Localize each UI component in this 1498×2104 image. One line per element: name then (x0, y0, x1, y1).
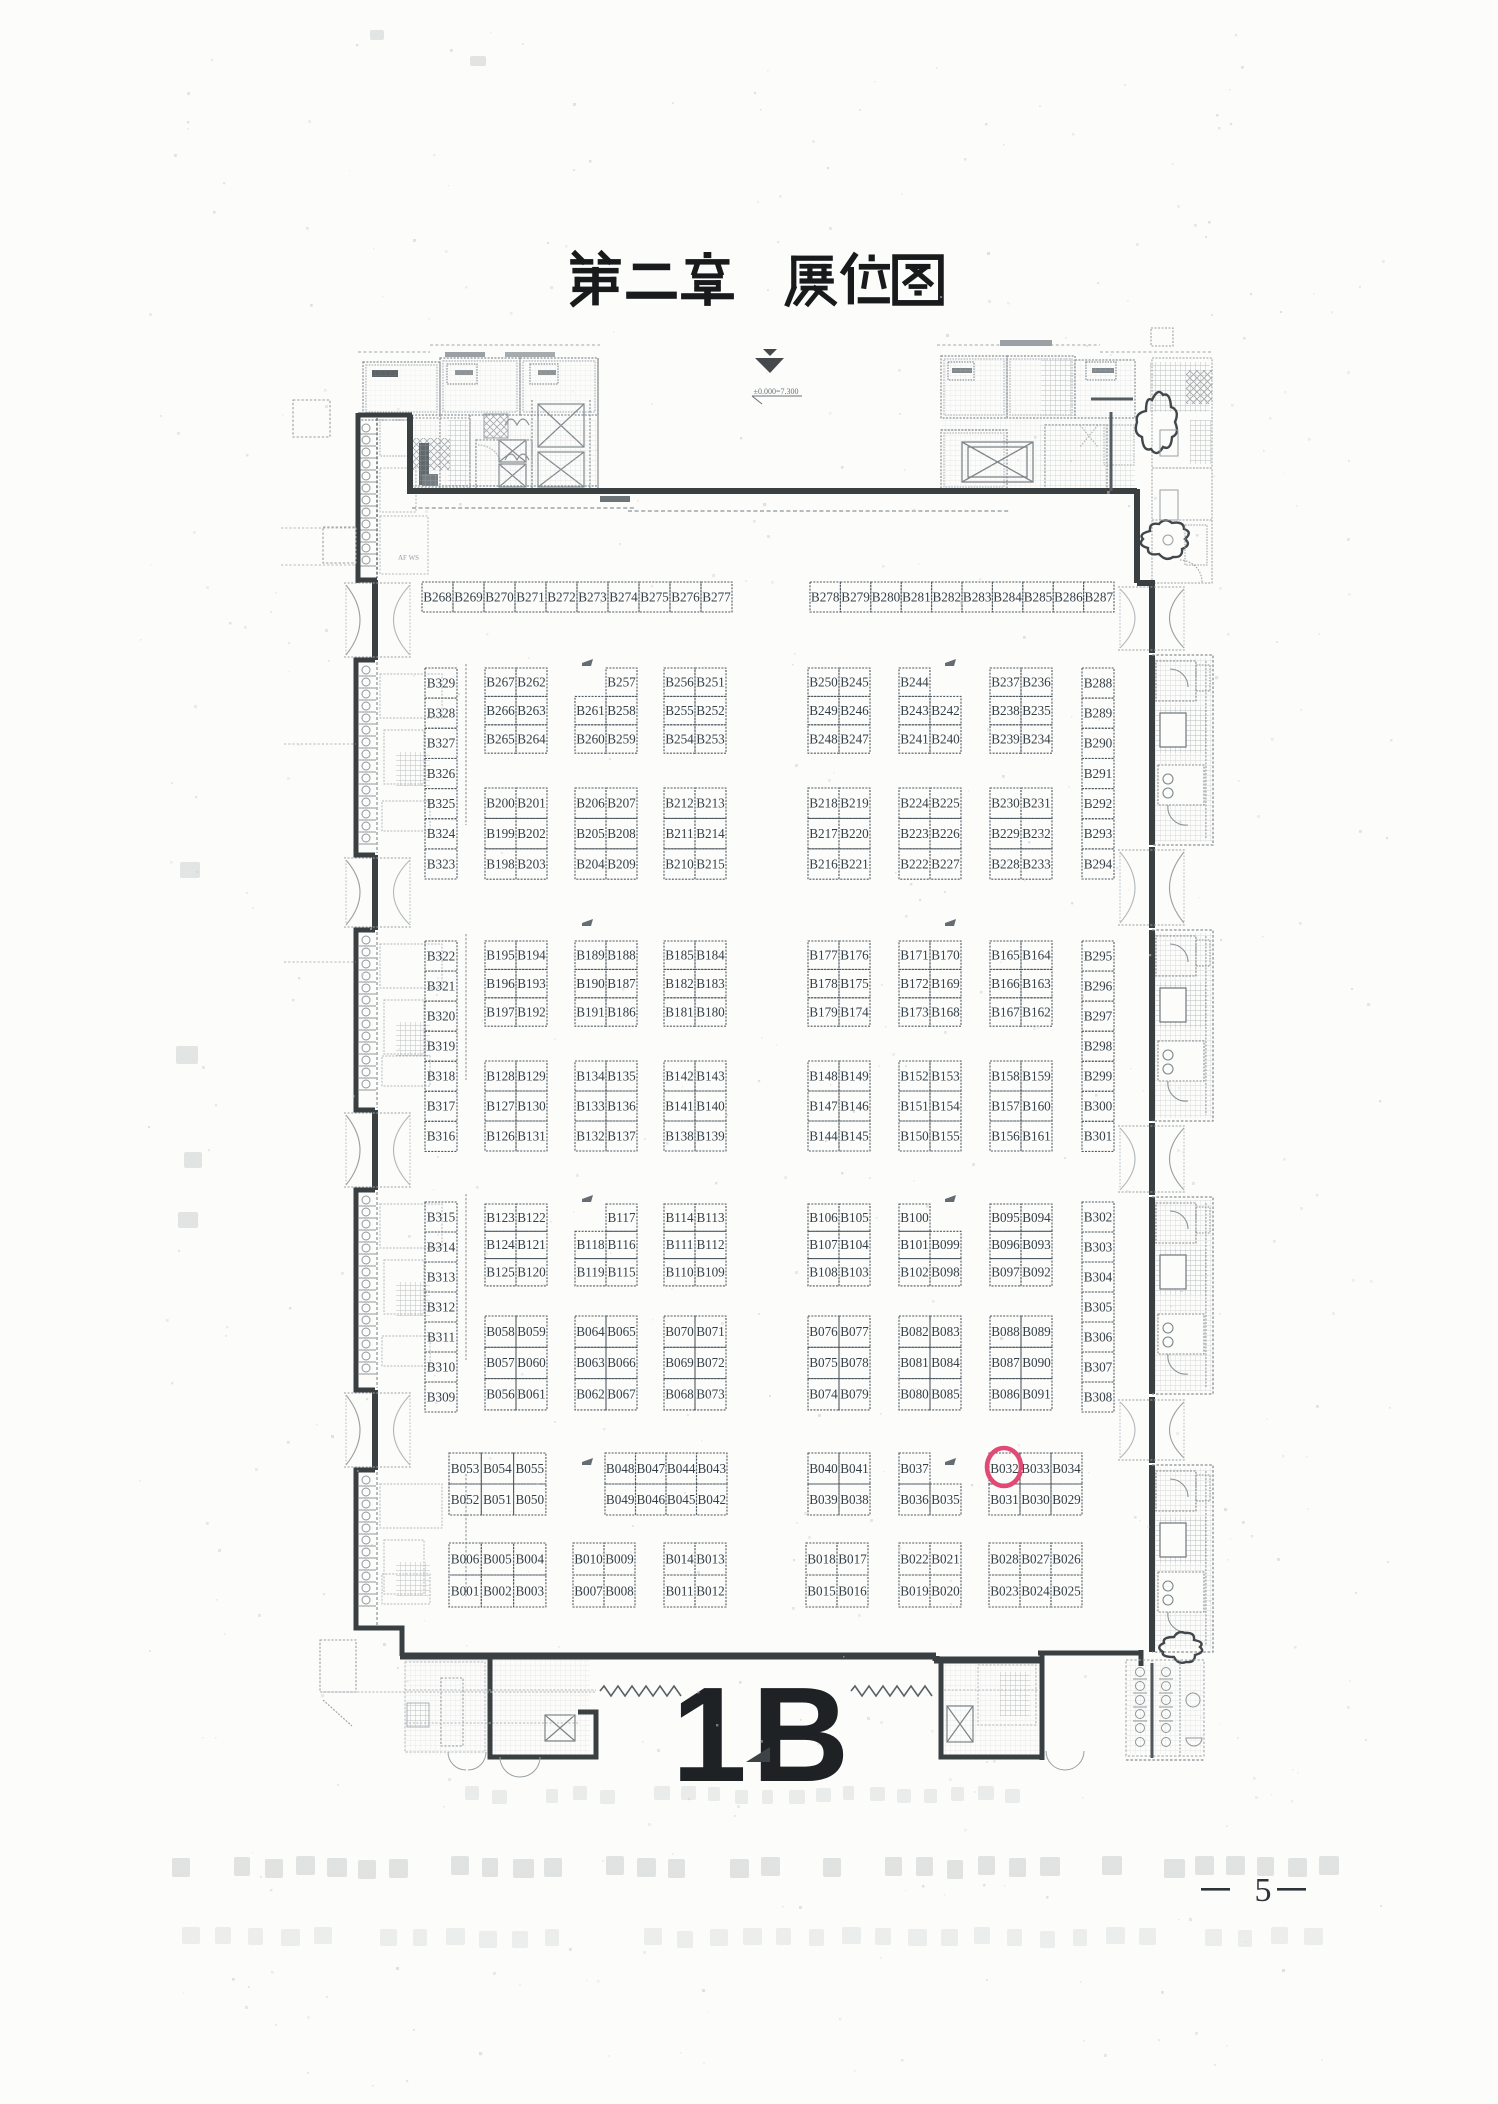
svg-text:B254: B254 (665, 731, 694, 746)
svg-text:B003: B003 (516, 1583, 545, 1598)
svg-text:B166: B166 (991, 976, 1020, 991)
svg-text:B050: B050 (516, 1492, 545, 1507)
svg-text:B058: B058 (486, 1324, 515, 1339)
svg-text:B144: B144 (809, 1128, 838, 1143)
svg-text:B286: B286 (1054, 589, 1083, 604)
svg-text:B310: B310 (427, 1359, 456, 1374)
svg-text:B126: B126 (486, 1128, 515, 1143)
svg-text:B285: B285 (1024, 589, 1053, 604)
svg-text:B030: B030 (1021, 1492, 1050, 1507)
svg-text:B132: B132 (576, 1128, 605, 1143)
svg-text:B269: B269 (454, 589, 483, 604)
svg-text:B049: B049 (606, 1492, 635, 1507)
svg-text:B218: B218 (809, 796, 838, 811)
svg-text:B102: B102 (900, 1265, 929, 1280)
svg-text:B092: B092 (1022, 1265, 1051, 1280)
svg-text:B119: B119 (576, 1265, 604, 1280)
svg-text:5: 5 (1255, 1872, 1272, 1909)
svg-text:B131: B131 (517, 1128, 546, 1143)
svg-text:B027: B027 (1021, 1551, 1050, 1566)
svg-text:B294: B294 (1084, 856, 1113, 871)
svg-text:B026: B026 (1052, 1551, 1081, 1566)
svg-text:B048: B048 (606, 1461, 635, 1476)
svg-text:B224: B224 (900, 796, 929, 811)
svg-text:B319: B319 (427, 1039, 456, 1054)
svg-text:B128: B128 (486, 1068, 515, 1083)
svg-text:B265: B265 (486, 731, 515, 746)
svg-text:B140: B140 (696, 1098, 725, 1113)
svg-text:B164: B164 (1022, 948, 1051, 963)
svg-text:B249: B249 (809, 703, 838, 718)
svg-text:B145: B145 (840, 1128, 869, 1143)
svg-text:B244: B244 (900, 675, 929, 690)
svg-text:B046: B046 (637, 1492, 666, 1507)
svg-text:B326: B326 (427, 766, 456, 781)
svg-text:B013: B013 (696, 1551, 725, 1566)
svg-text:B045: B045 (667, 1492, 696, 1507)
svg-text:B289: B289 (1084, 706, 1113, 721)
svg-text:B193: B193 (517, 976, 546, 991)
svg-text:B270: B270 (485, 589, 514, 604)
svg-text:B019: B019 (900, 1583, 929, 1598)
svg-text:B009: B009 (605, 1551, 634, 1566)
svg-text:B297: B297 (1084, 1008, 1113, 1023)
svg-text:B167: B167 (991, 1004, 1020, 1019)
svg-text:B082: B082 (900, 1324, 929, 1339)
svg-text:B079: B079 (840, 1387, 869, 1402)
svg-text:B296: B296 (1084, 978, 1113, 993)
svg-text:B242: B242 (931, 703, 960, 718)
svg-text:B178: B178 (809, 976, 838, 991)
svg-text:B248: B248 (809, 731, 838, 746)
svg-text:B141: B141 (665, 1098, 694, 1113)
svg-text:B052: B052 (451, 1492, 480, 1507)
svg-text:B063: B063 (576, 1355, 605, 1370)
svg-text:B182: B182 (665, 976, 694, 991)
svg-text:B315: B315 (427, 1209, 456, 1224)
svg-text:B308: B308 (1084, 1389, 1113, 1404)
svg-text:B104: B104 (840, 1237, 869, 1252)
svg-text:B152: B152 (900, 1068, 929, 1083)
svg-text:B097: B097 (991, 1265, 1020, 1280)
svg-text:B223: B223 (900, 826, 929, 841)
svg-text:B211: B211 (665, 826, 693, 841)
svg-text:B213: B213 (696, 796, 725, 811)
svg-text:B273: B273 (578, 589, 607, 604)
svg-text:B007: B007 (574, 1583, 603, 1598)
svg-text:B037: B037 (900, 1461, 929, 1476)
svg-text:B186: B186 (607, 1004, 636, 1019)
svg-text:B222: B222 (900, 856, 929, 871)
svg-text:B108: B108 (809, 1265, 838, 1280)
svg-text:B321: B321 (427, 978, 456, 993)
svg-text:B216: B216 (809, 856, 838, 871)
svg-text:B300: B300 (1084, 1099, 1113, 1114)
svg-text:B324: B324 (427, 826, 456, 841)
svg-text:B228: B228 (991, 856, 1020, 871)
svg-text:B086: B086 (991, 1387, 1020, 1402)
svg-text:B147: B147 (809, 1098, 838, 1113)
svg-text:B060: B060 (517, 1355, 546, 1370)
svg-text:B117: B117 (607, 1210, 635, 1225)
svg-text:B051: B051 (483, 1492, 512, 1507)
svg-text:B025: B025 (1052, 1583, 1081, 1598)
svg-text:B047: B047 (637, 1461, 666, 1476)
svg-text:B196: B196 (486, 976, 515, 991)
svg-text:B272: B272 (547, 589, 576, 604)
svg-text:B298: B298 (1084, 1039, 1113, 1054)
svg-text:B121: B121 (517, 1237, 546, 1252)
svg-text:B090: B090 (1022, 1355, 1051, 1370)
svg-text:B233: B233 (1022, 856, 1051, 871)
svg-text:B304: B304 (1084, 1269, 1113, 1284)
svg-text:B023: B023 (990, 1583, 1019, 1598)
svg-text:B234: B234 (1022, 731, 1051, 746)
svg-text:B053: B053 (451, 1461, 480, 1476)
svg-text:B133: B133 (576, 1098, 605, 1113)
svg-text:B261: B261 (576, 703, 605, 718)
svg-text:B316: B316 (427, 1129, 456, 1144)
svg-text:B198: B198 (486, 856, 515, 871)
svg-text:B236: B236 (1022, 675, 1051, 690)
svg-text:B110: B110 (665, 1265, 693, 1280)
svg-text:B151: B151 (900, 1098, 929, 1113)
svg-text:B187: B187 (607, 976, 636, 991)
svg-text:±0.000=7.300: ±0.000=7.300 (754, 387, 799, 396)
svg-text:B219: B219 (840, 796, 869, 811)
svg-text:B290: B290 (1084, 736, 1113, 751)
svg-text:B043: B043 (698, 1461, 727, 1476)
svg-text:B032: B032 (990, 1461, 1019, 1476)
svg-text:B067: B067 (607, 1387, 636, 1402)
svg-text:B022: B022 (900, 1551, 929, 1566)
svg-text:B041: B041 (840, 1461, 869, 1476)
svg-text:B142: B142 (665, 1068, 694, 1083)
svg-text:B080: B080 (900, 1387, 929, 1402)
svg-text:B071: B071 (696, 1324, 725, 1339)
svg-text:B247: B247 (840, 731, 869, 746)
svg-text:B143: B143 (696, 1068, 725, 1083)
svg-text:B057: B057 (486, 1355, 515, 1370)
svg-text:B116: B116 (607, 1237, 635, 1252)
svg-text:B226: B226 (931, 826, 960, 841)
svg-text:B154: B154 (931, 1098, 960, 1113)
svg-text:B089: B089 (1022, 1324, 1051, 1339)
svg-text:B001: B001 (451, 1583, 480, 1598)
svg-text:B287: B287 (1085, 589, 1114, 604)
svg-text:B129: B129 (517, 1068, 546, 1083)
svg-text:B135: B135 (607, 1068, 636, 1083)
svg-text:B122: B122 (517, 1210, 546, 1225)
svg-text:B276: B276 (671, 589, 700, 604)
svg-text:B281: B281 (902, 589, 931, 604)
svg-text:B207: B207 (607, 796, 636, 811)
svg-text:B100: B100 (900, 1210, 929, 1225)
svg-text:B068: B068 (665, 1387, 694, 1402)
svg-text:B227: B227 (931, 856, 960, 871)
svg-text:B179: B179 (809, 1004, 838, 1019)
svg-text:B113: B113 (696, 1210, 724, 1225)
svg-text:B239: B239 (991, 731, 1020, 746)
svg-text:B078: B078 (840, 1355, 869, 1370)
svg-text:B311: B311 (427, 1329, 455, 1344)
svg-text:B235: B235 (1022, 703, 1051, 718)
svg-text:B093: B093 (1022, 1237, 1051, 1252)
svg-text:B130: B130 (517, 1098, 546, 1113)
svg-text:B203: B203 (517, 856, 546, 871)
svg-text:B055: B055 (516, 1461, 545, 1476)
svg-text:B083: B083 (931, 1324, 960, 1339)
svg-text:B098: B098 (931, 1265, 960, 1280)
svg-text:B158: B158 (991, 1068, 1020, 1083)
svg-text:B284: B284 (993, 589, 1022, 604)
svg-text:B084: B084 (931, 1355, 960, 1370)
svg-text:B137: B137 (607, 1128, 636, 1143)
svg-text:B062: B062 (576, 1387, 605, 1402)
svg-text:B246: B246 (840, 703, 869, 718)
svg-text:B006: B006 (451, 1551, 480, 1566)
svg-text:B194: B194 (517, 948, 546, 963)
svg-text:B327: B327 (427, 736, 456, 751)
svg-text:B245: B245 (840, 675, 869, 690)
svg-text:B114: B114 (665, 1210, 693, 1225)
svg-text:B271: B271 (516, 589, 545, 604)
svg-text:B314: B314 (427, 1239, 456, 1254)
svg-text:B240: B240 (931, 731, 960, 746)
svg-text:B221: B221 (840, 856, 869, 871)
svg-text:B277: B277 (702, 589, 731, 604)
svg-text:B021: B021 (931, 1551, 960, 1566)
svg-text:B275: B275 (640, 589, 669, 604)
svg-text:B318: B318 (427, 1069, 456, 1084)
svg-text:B192: B192 (517, 1004, 546, 1019)
svg-text:B168: B168 (931, 1004, 960, 1019)
svg-text:B008: B008 (605, 1583, 634, 1598)
svg-text:B134: B134 (576, 1068, 605, 1083)
svg-text:B180: B180 (696, 1004, 725, 1019)
svg-text:B172: B172 (900, 976, 929, 991)
svg-text:B174: B174 (840, 1004, 869, 1019)
svg-text:B103: B103 (840, 1265, 869, 1280)
svg-text:B329: B329 (427, 675, 456, 690)
svg-text:B085: B085 (931, 1387, 960, 1402)
svg-text:B171: B171 (900, 948, 929, 963)
svg-text:B250: B250 (809, 675, 838, 690)
svg-text:B106: B106 (809, 1210, 838, 1225)
svg-text:B066: B066 (607, 1355, 636, 1370)
svg-text:B295: B295 (1084, 948, 1113, 963)
svg-text:B065: B065 (607, 1324, 636, 1339)
svg-text:B015: B015 (807, 1583, 836, 1598)
svg-text:B029: B029 (1052, 1492, 1081, 1507)
svg-text:B266: B266 (486, 703, 515, 718)
svg-text:B159: B159 (1022, 1068, 1051, 1083)
svg-text:B173: B173 (900, 1004, 929, 1019)
svg-text:B161: B161 (1022, 1128, 1051, 1143)
svg-text:B127: B127 (486, 1098, 515, 1113)
svg-text:B220: B220 (840, 826, 869, 841)
svg-text:B283: B283 (963, 589, 992, 604)
svg-text:B282: B282 (933, 589, 962, 604)
svg-text:B177: B177 (809, 948, 838, 963)
svg-text:B209: B209 (607, 856, 636, 871)
svg-text:B125: B125 (486, 1265, 515, 1280)
svg-text:B268: B268 (423, 589, 452, 604)
svg-text:B279: B279 (841, 589, 870, 604)
svg-text:B073: B073 (696, 1387, 725, 1402)
svg-text:B303: B303 (1084, 1239, 1113, 1254)
svg-text:B208: B208 (607, 826, 636, 841)
svg-text:B157: B157 (991, 1098, 1020, 1113)
svg-text:B323: B323 (427, 856, 456, 871)
svg-text:B064: B064 (576, 1324, 605, 1339)
svg-text:B293: B293 (1084, 826, 1113, 841)
svg-text:B095: B095 (991, 1210, 1020, 1225)
svg-text:B061: B061 (517, 1387, 546, 1402)
svg-text:B069: B069 (665, 1355, 694, 1370)
svg-text:B214: B214 (696, 826, 725, 841)
svg-text:B291: B291 (1084, 766, 1113, 781)
svg-text:B230: B230 (991, 796, 1020, 811)
svg-text:B241: B241 (900, 731, 929, 746)
svg-text:B004: B004 (516, 1551, 545, 1566)
svg-text:B156: B156 (991, 1128, 1020, 1143)
svg-text:B215: B215 (696, 856, 725, 871)
svg-text:B201: B201 (517, 796, 546, 811)
svg-text:B299: B299 (1084, 1069, 1113, 1084)
svg-text:B072: B072 (696, 1355, 725, 1370)
svg-text:B190: B190 (576, 976, 605, 991)
svg-text:B197: B197 (486, 1004, 515, 1019)
svg-text:B017: B017 (838, 1551, 867, 1566)
svg-text:B011: B011 (665, 1583, 693, 1598)
svg-text:B205: B205 (576, 826, 605, 841)
svg-text:B155: B155 (931, 1128, 960, 1143)
svg-text:B306: B306 (1084, 1329, 1113, 1344)
svg-text:B199: B199 (486, 826, 515, 841)
svg-text:B123: B123 (486, 1210, 515, 1225)
svg-text:B267: B267 (486, 675, 515, 690)
svg-text:B107: B107 (809, 1237, 838, 1252)
svg-text:B170: B170 (931, 948, 960, 963)
svg-text:B033: B033 (1021, 1461, 1050, 1476)
svg-text:B176: B176 (840, 948, 869, 963)
svg-text:B204: B204 (576, 856, 605, 871)
svg-text:B118: B118 (576, 1237, 604, 1252)
svg-text:B042: B042 (698, 1492, 727, 1507)
svg-text:B148: B148 (809, 1068, 838, 1083)
svg-text:B263: B263 (517, 703, 546, 718)
svg-text:B120: B120 (517, 1265, 546, 1280)
svg-text:B028: B028 (990, 1551, 1019, 1566)
svg-text:B039: B039 (809, 1492, 838, 1507)
svg-text:B081: B081 (900, 1355, 929, 1370)
svg-text:B099: B099 (931, 1237, 960, 1252)
svg-text:B036: B036 (900, 1492, 929, 1507)
svg-text:B153: B153 (931, 1068, 960, 1083)
svg-text:B111: B111 (666, 1237, 694, 1252)
svg-text:B075: B075 (809, 1355, 838, 1370)
svg-text:B074: B074 (809, 1387, 838, 1402)
svg-text:B005: B005 (483, 1551, 512, 1566)
svg-text:B255: B255 (665, 703, 694, 718)
svg-text:B243: B243 (900, 703, 929, 718)
svg-text:B162: B162 (1022, 1004, 1051, 1019)
svg-text:B278: B278 (811, 589, 840, 604)
svg-text:B034: B034 (1052, 1461, 1081, 1476)
svg-text:B109: B109 (696, 1265, 725, 1280)
svg-text:B077: B077 (840, 1324, 869, 1339)
svg-text:B012: B012 (696, 1583, 725, 1598)
svg-text:B305: B305 (1084, 1299, 1113, 1314)
svg-text:B136: B136 (607, 1098, 636, 1113)
svg-text:B322: B322 (427, 948, 456, 963)
svg-text:B076: B076 (809, 1324, 838, 1339)
svg-text:B210: B210 (665, 856, 694, 871)
svg-text:B184: B184 (696, 948, 725, 963)
svg-text:B202: B202 (517, 826, 546, 841)
svg-text:B115: B115 (607, 1265, 635, 1280)
svg-text:B088: B088 (991, 1324, 1020, 1339)
svg-text:B091: B091 (1022, 1387, 1051, 1402)
svg-text:B231: B231 (1022, 796, 1051, 811)
svg-text:B040: B040 (809, 1461, 838, 1476)
svg-text:B312: B312 (427, 1299, 456, 1314)
svg-text:B038: B038 (840, 1492, 869, 1507)
svg-text:B195: B195 (486, 948, 515, 963)
svg-text:B070: B070 (665, 1324, 694, 1339)
svg-text:B054: B054 (483, 1461, 512, 1476)
svg-text:B264: B264 (517, 731, 546, 746)
svg-text:B237: B237 (991, 675, 1020, 690)
svg-text:B259: B259 (607, 731, 636, 746)
svg-text:B101: B101 (900, 1237, 929, 1252)
svg-text:B274: B274 (609, 589, 638, 604)
svg-text:B200: B200 (486, 796, 515, 811)
svg-text:B256: B256 (665, 675, 694, 690)
svg-text:B165: B165 (991, 948, 1020, 963)
svg-text:B328: B328 (427, 706, 456, 721)
svg-text:B253: B253 (696, 731, 725, 746)
svg-text:B317: B317 (427, 1099, 456, 1114)
svg-text:B217: B217 (809, 826, 838, 841)
svg-text:B094: B094 (1022, 1210, 1051, 1225)
svg-text:B251: B251 (696, 675, 725, 690)
svg-text:B302: B302 (1084, 1209, 1113, 1224)
svg-text:B150: B150 (900, 1128, 929, 1143)
svg-text:B096: B096 (991, 1237, 1020, 1252)
svg-text:B087: B087 (991, 1355, 1020, 1370)
svg-text:1B: 1B (672, 1659, 855, 1810)
svg-text:B035: B035 (931, 1492, 960, 1507)
svg-text:B105: B105 (840, 1210, 869, 1225)
svg-text:B024: B024 (1021, 1583, 1050, 1598)
svg-text:B258: B258 (607, 703, 636, 718)
svg-text:B260: B260 (576, 731, 605, 746)
svg-text:B002: B002 (483, 1583, 512, 1598)
svg-text:B309: B309 (427, 1389, 456, 1404)
svg-text:B238: B238 (991, 703, 1020, 718)
svg-text:B185: B185 (665, 948, 694, 963)
svg-text:B059: B059 (517, 1324, 546, 1339)
svg-text:B020: B020 (931, 1583, 960, 1598)
svg-text:B044: B044 (667, 1461, 696, 1476)
svg-text:B149: B149 (840, 1068, 869, 1083)
svg-text:B181: B181 (665, 1004, 694, 1019)
svg-text:B112: B112 (696, 1237, 724, 1252)
svg-text:B325: B325 (427, 796, 456, 811)
svg-text:B018: B018 (807, 1551, 836, 1566)
